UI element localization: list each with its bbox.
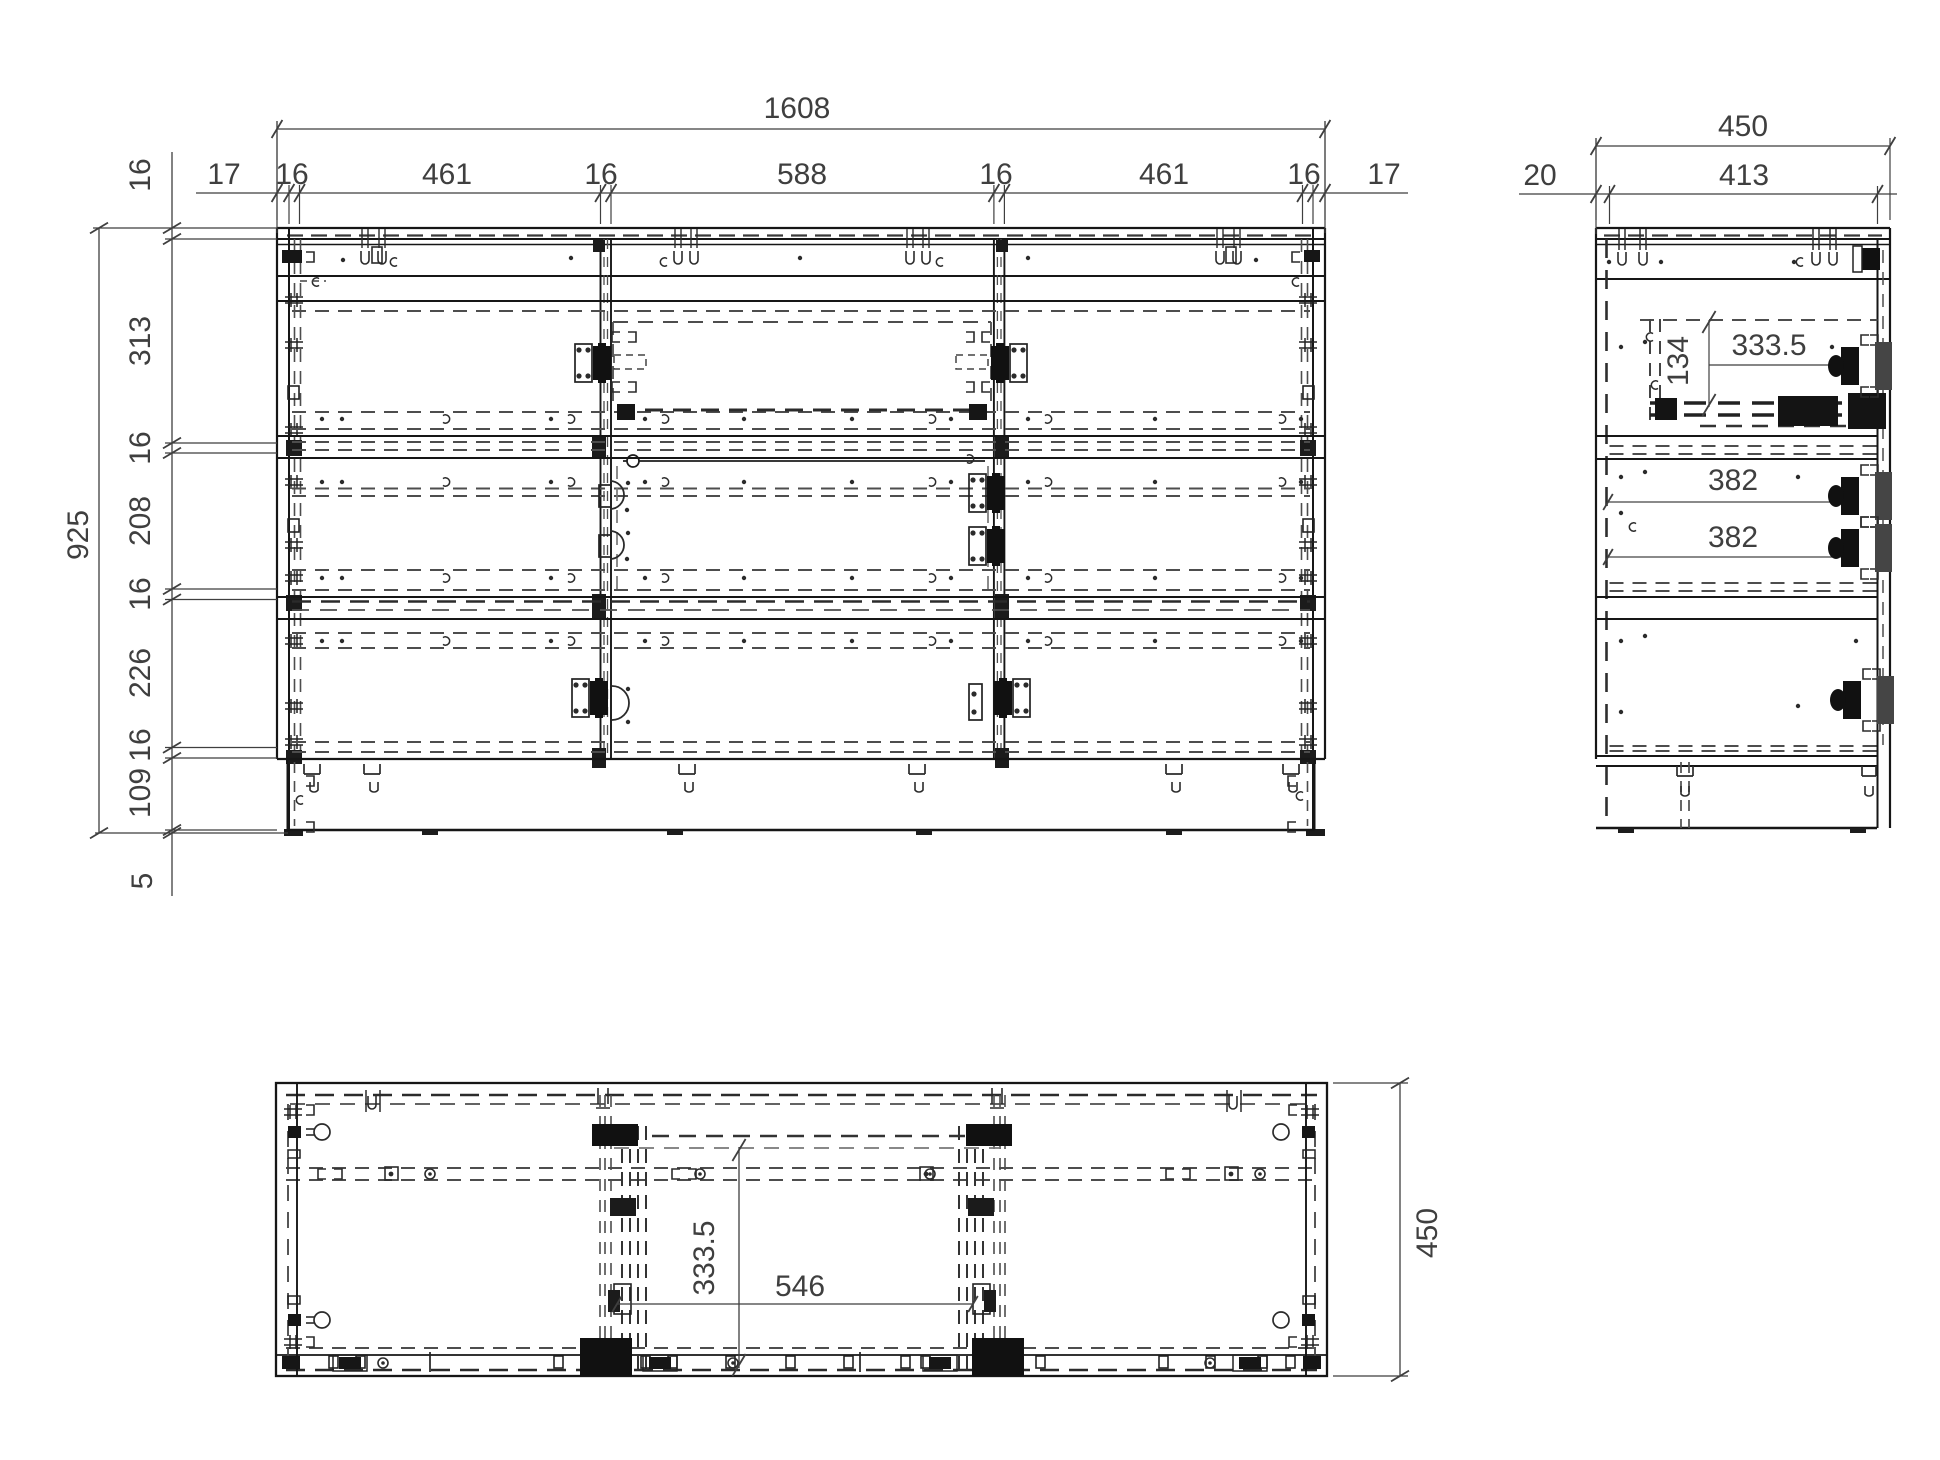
svg-text:382: 382 xyxy=(1708,521,1758,554)
svg-text:16: 16 xyxy=(124,728,157,761)
svg-text:134: 134 xyxy=(1662,336,1695,386)
svg-text:382: 382 xyxy=(1708,464,1758,497)
svg-text:413: 413 xyxy=(1719,159,1769,192)
svg-text:17: 17 xyxy=(1367,158,1400,191)
svg-text:333.5: 333.5 xyxy=(688,1220,721,1295)
svg-text:20: 20 xyxy=(1523,159,1556,192)
svg-text:17: 17 xyxy=(207,158,240,191)
svg-text:461: 461 xyxy=(1139,158,1189,191)
svg-text:450: 450 xyxy=(1718,110,1768,143)
svg-text:16: 16 xyxy=(124,577,157,610)
svg-text:450: 450 xyxy=(1411,1208,1444,1258)
svg-text:208: 208 xyxy=(124,496,157,546)
svg-text:1608: 1608 xyxy=(764,92,831,125)
svg-text:109: 109 xyxy=(124,768,157,818)
svg-text:333.5: 333.5 xyxy=(1731,329,1806,362)
svg-text:16: 16 xyxy=(124,431,157,464)
svg-text:16: 16 xyxy=(275,158,308,191)
svg-text:546: 546 xyxy=(775,1270,825,1303)
svg-text:16: 16 xyxy=(979,158,1012,191)
svg-text:313: 313 xyxy=(124,316,157,366)
svg-text:226: 226 xyxy=(124,648,157,698)
svg-text:16: 16 xyxy=(584,158,617,191)
svg-text:925: 925 xyxy=(62,510,95,560)
svg-text:588: 588 xyxy=(777,158,827,191)
svg-text:461: 461 xyxy=(422,158,472,191)
svg-text:16: 16 xyxy=(124,158,157,191)
svg-text:5: 5 xyxy=(126,873,159,890)
svg-text:16: 16 xyxy=(1287,158,1320,191)
